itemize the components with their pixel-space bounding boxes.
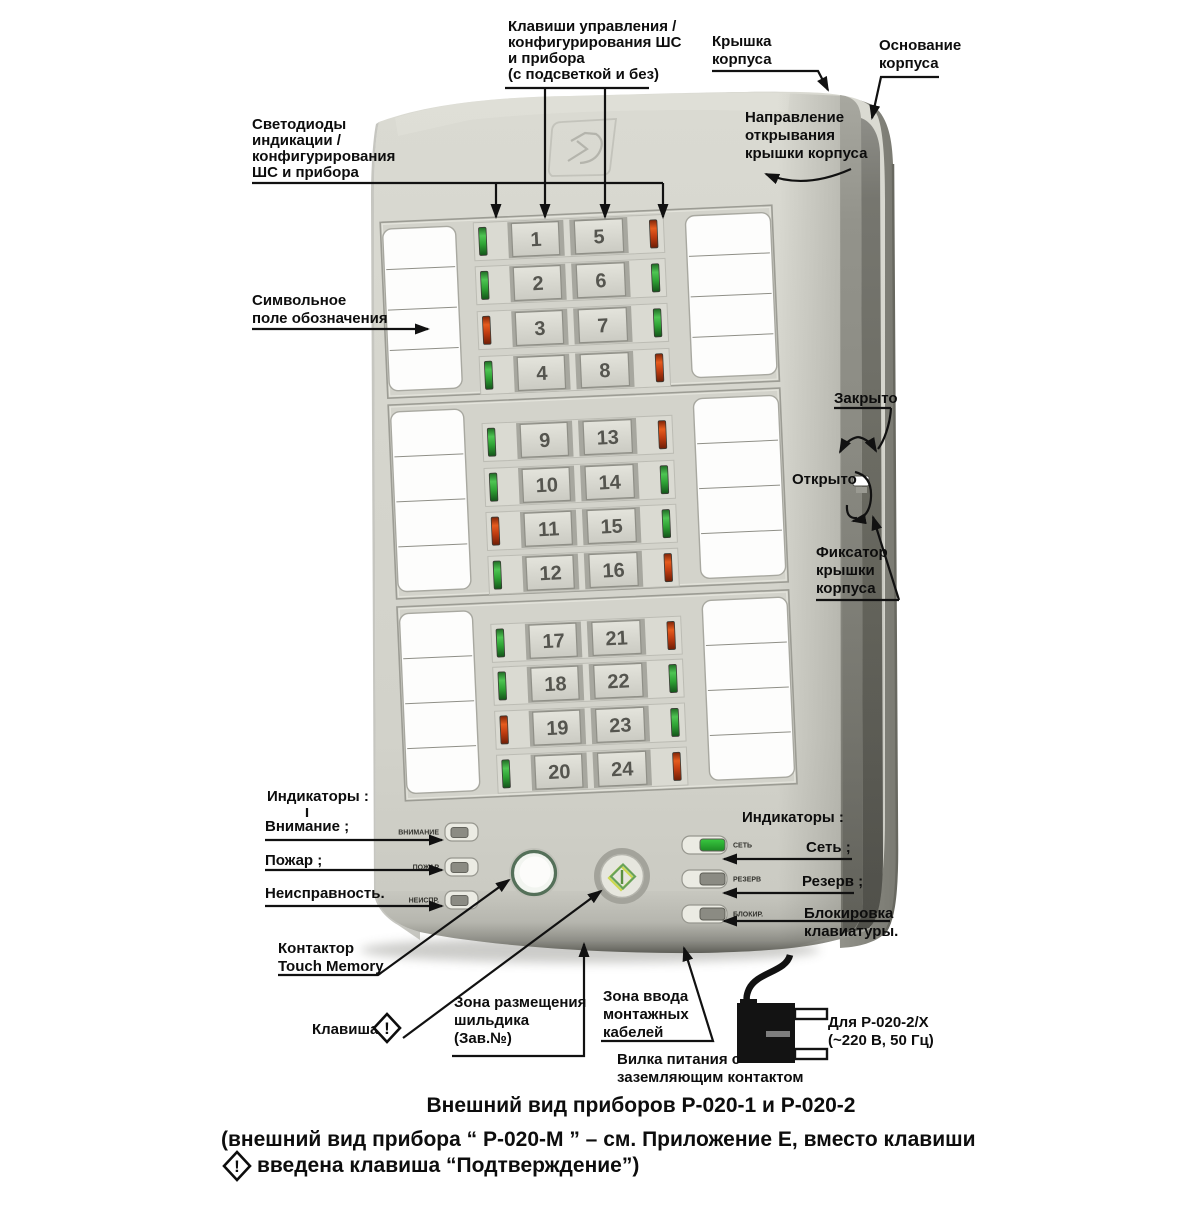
svg-text:1: 1 bbox=[530, 229, 542, 251]
svg-text:кабелей: кабелей bbox=[603, 1024, 663, 1041]
svg-text:4: 4 bbox=[536, 363, 549, 386]
svg-text:(Зав.№): (Зав.№) bbox=[454, 1030, 512, 1047]
svg-text:поле обозначения: поле обозначения bbox=[252, 310, 388, 327]
svg-text:крышки: крышки bbox=[816, 562, 875, 579]
svg-text:Touch Memory: Touch Memory bbox=[278, 958, 384, 975]
svg-text:РЕЗЕРВ: РЕЗЕРВ bbox=[733, 877, 761, 884]
svg-text:индикации /: индикации / bbox=[252, 132, 342, 149]
svg-text:8: 8 bbox=[599, 360, 611, 382]
svg-text:Неисправность.: Неисправность. bbox=[265, 885, 385, 902]
svg-text:конфигурирования ШС: конфигурирования ШС bbox=[508, 34, 682, 51]
svg-text:Клавиши управления /: Клавиши управления / bbox=[508, 18, 677, 35]
svg-text:13: 13 bbox=[596, 427, 619, 450]
svg-text:(внешний вид прибора “ Р-020-М: (внешний вид прибора “ Р-020-М ” – см. П… bbox=[221, 1128, 976, 1151]
svg-text:Клавиша: Клавиша bbox=[312, 1021, 379, 1038]
svg-text:24: 24 bbox=[611, 758, 635, 781]
svg-text:Индикаторы :: Индикаторы : bbox=[742, 809, 844, 826]
svg-text:22: 22 bbox=[607, 670, 630, 693]
svg-text:23: 23 bbox=[609, 714, 632, 737]
svg-text:заземляющим контактом: заземляющим контактом bbox=[617, 1069, 803, 1086]
svg-text:Для Р-020-2/Х: Для Р-020-2/Х bbox=[828, 1014, 929, 1031]
svg-text:9: 9 bbox=[539, 430, 551, 452]
svg-text:НЕИСПР.: НЕИСПР. bbox=[409, 898, 439, 905]
svg-text:7: 7 bbox=[597, 315, 609, 337]
svg-text:20: 20 bbox=[548, 761, 571, 784]
svg-text:шильдика: шильдика bbox=[454, 1012, 530, 1029]
svg-text:Открыто: Открыто bbox=[792, 471, 857, 488]
svg-text:17: 17 bbox=[542, 630, 565, 653]
svg-text:Блокировка: Блокировка bbox=[804, 905, 894, 922]
svg-text:Закрыто: Закрыто bbox=[834, 390, 898, 407]
svg-text:14: 14 bbox=[598, 472, 622, 495]
svg-text:Резерв ;: Резерв ; bbox=[802, 873, 863, 890]
svg-text:Основание: Основание bbox=[879, 37, 961, 54]
svg-text:корпуса: корпуса bbox=[879, 55, 939, 72]
svg-text:ВНИМАНИЕ: ВНИМАНИЕ bbox=[398, 830, 439, 837]
svg-text:Зона ввода: Зона ввода bbox=[603, 988, 689, 1005]
svg-text:Светодиоды: Светодиоды bbox=[252, 116, 346, 133]
svg-text:(~220 В, 50 Гц): (~220 В, 50 Гц) bbox=[828, 1032, 934, 1049]
svg-text:корпуса: корпуса bbox=[816, 580, 876, 597]
svg-text:и прибора: и прибора bbox=[508, 50, 585, 67]
svg-text:Зона размещения: Зона размещения bbox=[454, 994, 586, 1011]
svg-text:16: 16 bbox=[602, 560, 625, 583]
svg-text:монтажных: монтажных bbox=[603, 1006, 689, 1023]
svg-text:Сеть ;: Сеть ; bbox=[806, 839, 851, 856]
svg-text:введена клавиша “Подтверждение: введена клавиша “Подтверждение”) bbox=[257, 1154, 639, 1177]
svg-text:Фиксатор: Фиксатор bbox=[816, 544, 888, 561]
svg-text:открывания: открывания bbox=[745, 127, 835, 144]
svg-text:Внимание ;: Внимание ; bbox=[265, 818, 349, 835]
svg-text:18: 18 bbox=[544, 673, 567, 696]
svg-text:12: 12 bbox=[539, 562, 562, 585]
svg-text:15: 15 bbox=[600, 516, 623, 539]
svg-text:6: 6 bbox=[595, 270, 607, 292]
svg-text:Контактор: Контактор bbox=[278, 940, 354, 957]
svg-text:5: 5 bbox=[593, 226, 605, 248]
svg-text:ШС и прибора: ШС и прибора bbox=[252, 164, 359, 181]
svg-text:БЛОКИР.: БЛОКИР. bbox=[733, 912, 763, 919]
svg-text:21: 21 bbox=[605, 627, 628, 650]
svg-text:СЕТЬ: СЕТЬ bbox=[733, 843, 752, 850]
svg-text:крышки корпуса: крышки корпуса bbox=[745, 145, 868, 162]
svg-text:10: 10 bbox=[535, 474, 558, 497]
svg-text:Внешний вид приборов Р-020-1 и: Внешний вид приборов Р-020-1 и Р-020-2 bbox=[427, 1094, 856, 1117]
svg-text:19: 19 bbox=[546, 717, 569, 740]
svg-text:11: 11 bbox=[538, 518, 560, 541]
svg-text:Индикаторы :: Индикаторы : bbox=[267, 788, 369, 805]
svg-text:клавиатуры.: клавиатуры. bbox=[804, 923, 898, 940]
svg-text:!: ! bbox=[234, 1157, 240, 1176]
svg-text:корпуса: корпуса bbox=[712, 51, 772, 68]
svg-text:(с подсветкой и без): (с подсветкой и без) bbox=[508, 66, 659, 83]
svg-text:!: ! bbox=[384, 1019, 390, 1038]
svg-text:Символьное: Символьное bbox=[252, 292, 346, 309]
svg-text:Вилка питания с: Вилка питания с bbox=[617, 1051, 740, 1068]
svg-text:2: 2 bbox=[532, 273, 544, 295]
svg-text:3: 3 bbox=[534, 318, 546, 340]
svg-text:Направление: Направление bbox=[745, 109, 844, 126]
svg-text:Пожар ;: Пожар ; bbox=[265, 852, 322, 869]
svg-text:Крышка: Крышка bbox=[712, 33, 772, 50]
svg-text:конфигурирования: конфигурирования bbox=[252, 148, 395, 165]
